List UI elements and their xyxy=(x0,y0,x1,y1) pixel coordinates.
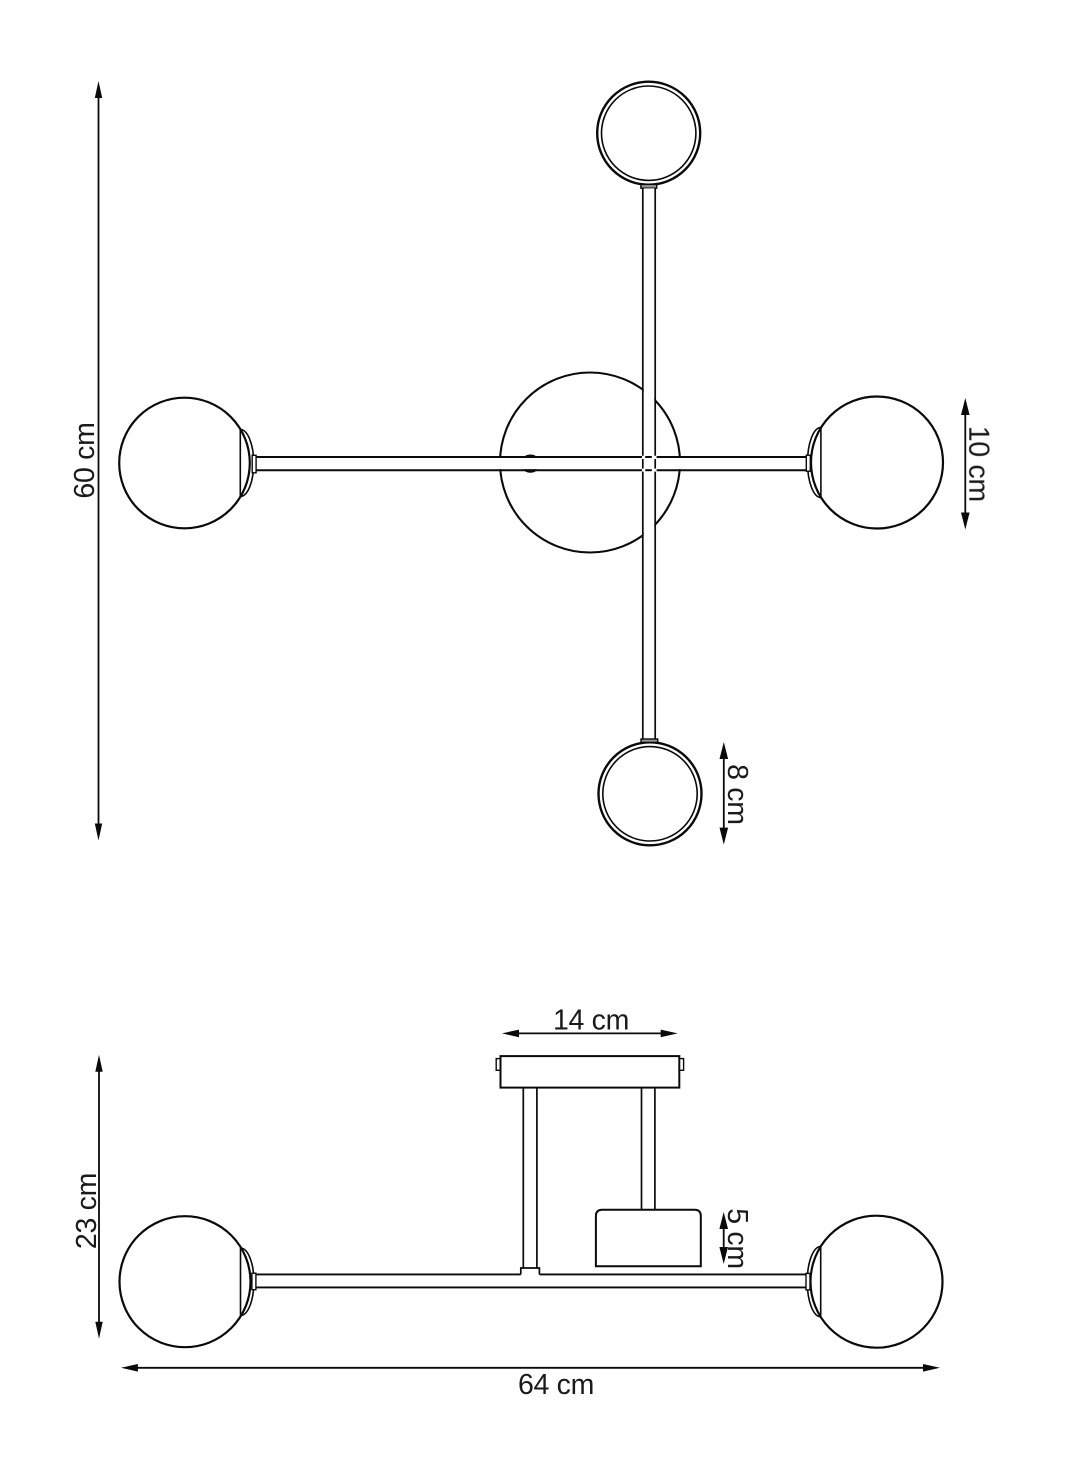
svg-text:5 cm: 5 cm xyxy=(721,1208,753,1269)
svg-text:23 cm: 23 cm xyxy=(71,1173,103,1249)
svg-text:10 cm: 10 cm xyxy=(962,426,994,502)
svg-text:14 cm: 14 cm xyxy=(553,1004,629,1036)
svg-text:60 cm: 60 cm xyxy=(69,422,101,498)
svg-text:8 cm: 8 cm xyxy=(721,764,753,825)
svg-text:64 cm: 64 cm xyxy=(518,1369,594,1401)
